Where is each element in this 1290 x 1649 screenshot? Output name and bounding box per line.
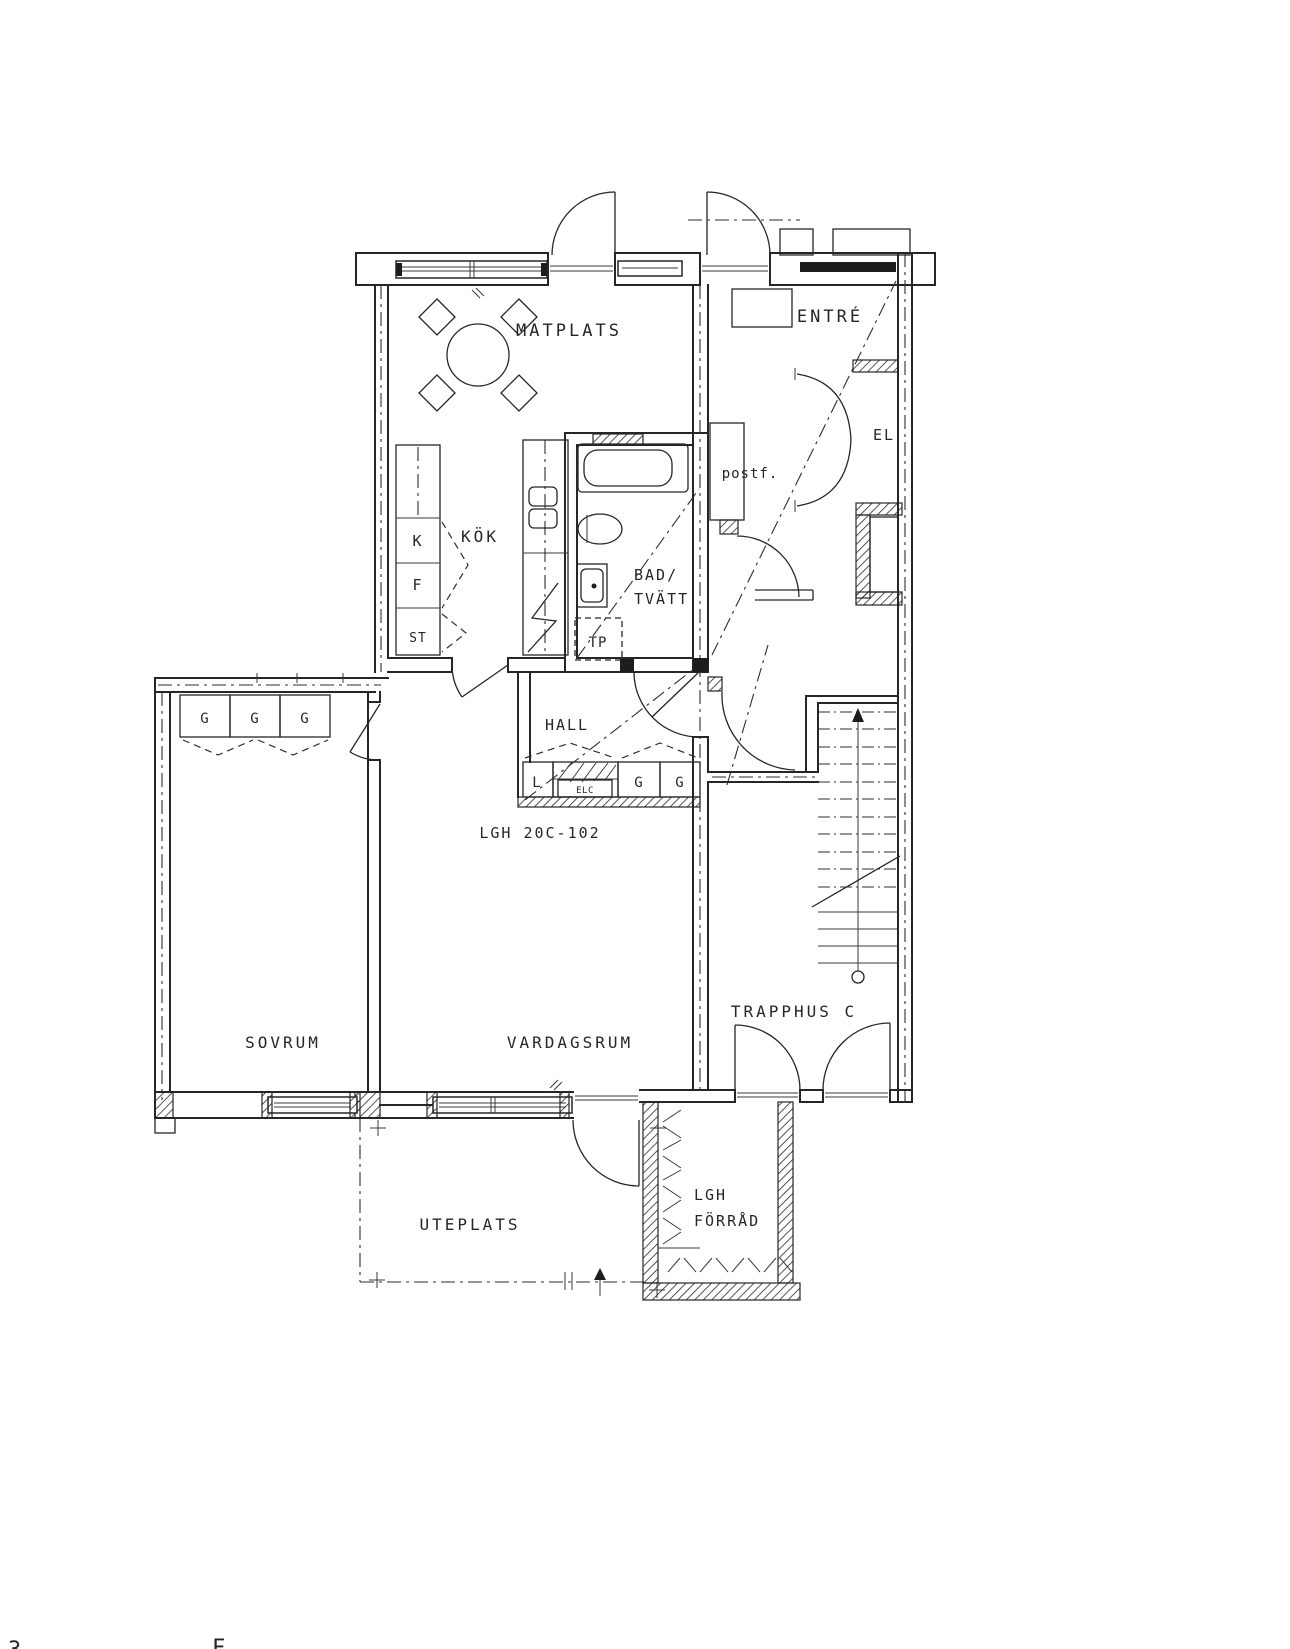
grid-label-partial-left: 3 [8, 1638, 21, 1649]
label-hall: HALL [545, 716, 589, 734]
label-bad-line1: BAD/ [634, 566, 678, 584]
label-bad-line2: TVÄTT [634, 589, 689, 608]
floor-plan-page: MATPLATS ENTRÉ EL postf. KÖK BAD/ TVÄTT … [0, 0, 1290, 1649]
label-sovrum: SOVRUM [245, 1033, 321, 1052]
label-garderob: G [300, 711, 309, 727]
kitchen-cabinets [396, 445, 468, 655]
grid-label-partial-mid: F [212, 1636, 225, 1649]
closet-door-swing [183, 740, 328, 755]
label-garderob: G [634, 775, 643, 791]
stove-burner [529, 509, 557, 528]
exterior-walls [155, 220, 935, 1133]
staircase [812, 708, 900, 983]
chair [419, 299, 455, 335]
label-el: EL [873, 426, 895, 444]
doormat [732, 289, 792, 327]
label-elc: ELC [576, 786, 594, 796]
label-garderob: G [675, 775, 684, 791]
floor-plan-canvas: MATPLATS ENTRÉ EL postf. KÖK BAD/ TVÄTT … [0, 0, 1290, 1649]
label-matplats: MATPLATS [516, 321, 622, 341]
uteplats-boundary [360, 1118, 666, 1298]
label-apartment-id: LGH 20C-102 [479, 824, 600, 842]
label-forrad-line1: LGH [694, 1186, 727, 1204]
bathroom-fixtures [575, 444, 688, 660]
label-linneskap: L [532, 775, 541, 791]
label-forrad-line2: FÖRRÅD [694, 1211, 760, 1230]
stair-break-line [812, 856, 900, 907]
windows [262, 261, 896, 1118]
sink-symbol [528, 583, 558, 652]
label-garderob: G [200, 711, 209, 727]
label-kyl: K [412, 532, 423, 550]
up-arrow [852, 708, 864, 722]
label-garderob: G [250, 711, 259, 727]
room-labels: MATPLATS ENTRÉ EL postf. KÖK BAD/ TVÄTT … [8, 305, 895, 1649]
stove-burner [529, 487, 557, 506]
label-kok: KÖK [461, 527, 499, 546]
label-tp: TP [589, 635, 608, 651]
north-arrow-head [594, 1268, 606, 1280]
mesh-wall-marks [663, 1110, 681, 1244]
toilet [578, 514, 622, 544]
label-trapphus: TRAPPHUS C [731, 1002, 857, 1021]
mesh-wall-marks [668, 1258, 792, 1272]
washbasin [577, 564, 607, 607]
entre-fixtures [710, 289, 902, 605]
label-entre: ENTRÉ [797, 305, 863, 327]
label-vardagsrum: VARDAGSRUM [507, 1033, 633, 1052]
label-stad: ST [409, 631, 427, 646]
bathtub [578, 444, 688, 492]
hall-closets [518, 743, 700, 807]
label-postf: postf. [722, 466, 779, 482]
el-closet [853, 360, 902, 605]
closet-door-swing [525, 743, 698, 758]
newel-post [852, 971, 864, 983]
chair [501, 375, 537, 411]
chair [419, 375, 455, 411]
label-frys: F [412, 576, 423, 594]
kitchen-counter [523, 440, 568, 655]
dining-table [419, 299, 537, 411]
label-uteplats: UTEPLATS [419, 1215, 520, 1234]
